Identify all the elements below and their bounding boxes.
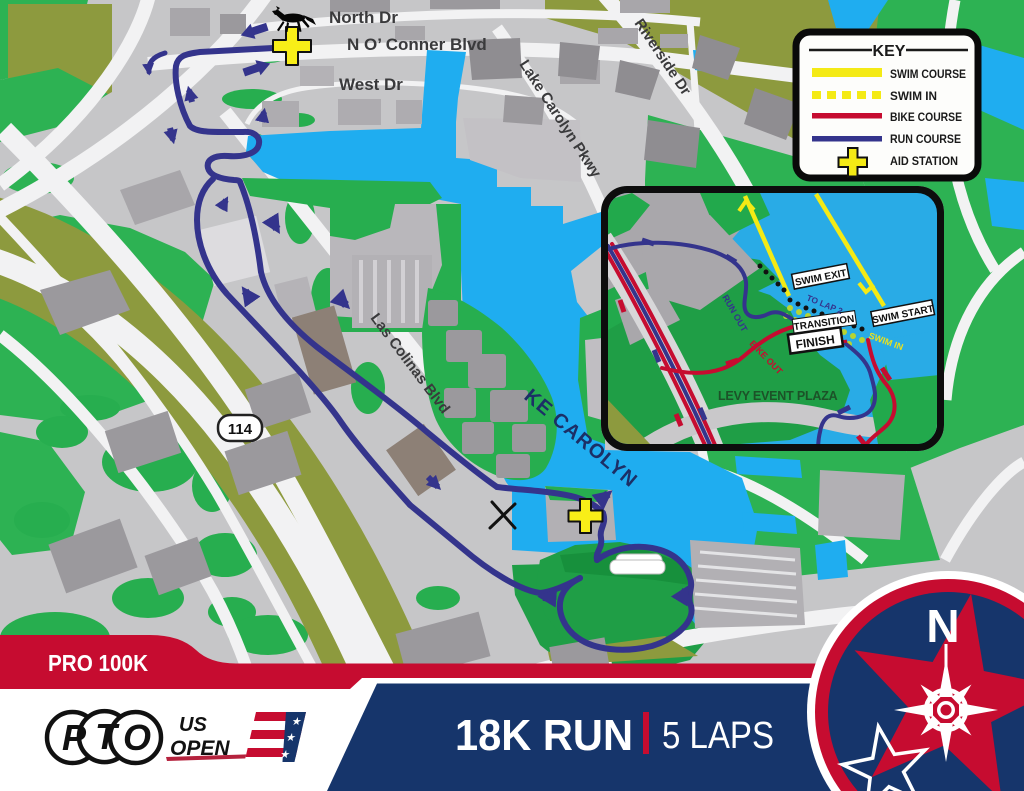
- svg-text:P: P: [62, 717, 87, 758]
- svg-text:KEY: KEY: [873, 43, 906, 60]
- svg-text:N O’ Conner Blvd: N O’ Conner Blvd: [347, 35, 487, 54]
- svg-text:North Dr: North Dr: [329, 8, 398, 27]
- svg-text:West Dr: West Dr: [339, 75, 403, 94]
- svg-text:RUN COURSE: RUN COURSE: [890, 134, 961, 146]
- svg-text:LEVY EVENT PLAZA: LEVY EVENT PLAZA: [718, 389, 838, 403]
- svg-text:T: T: [95, 716, 120, 757]
- svg-text:SWIM COURSE: SWIM COURSE: [890, 69, 966, 81]
- svg-text:AID STATION: AID STATION: [890, 156, 958, 168]
- svg-text:SWIM IN: SWIM IN: [890, 91, 937, 103]
- svg-text:18K RUN: 18K RUN: [455, 711, 633, 760]
- svg-text:5 LAPS: 5 LAPS: [662, 715, 774, 757]
- svg-text:US: US: [179, 714, 207, 736]
- svg-text:BIKE COURSE: BIKE COURSE: [890, 112, 962, 124]
- svg-text:114: 114: [228, 421, 253, 438]
- svg-text:PRO 100K: PRO 100K: [48, 650, 148, 676]
- svg-text:N: N: [926, 600, 959, 652]
- svg-text:O: O: [123, 717, 151, 758]
